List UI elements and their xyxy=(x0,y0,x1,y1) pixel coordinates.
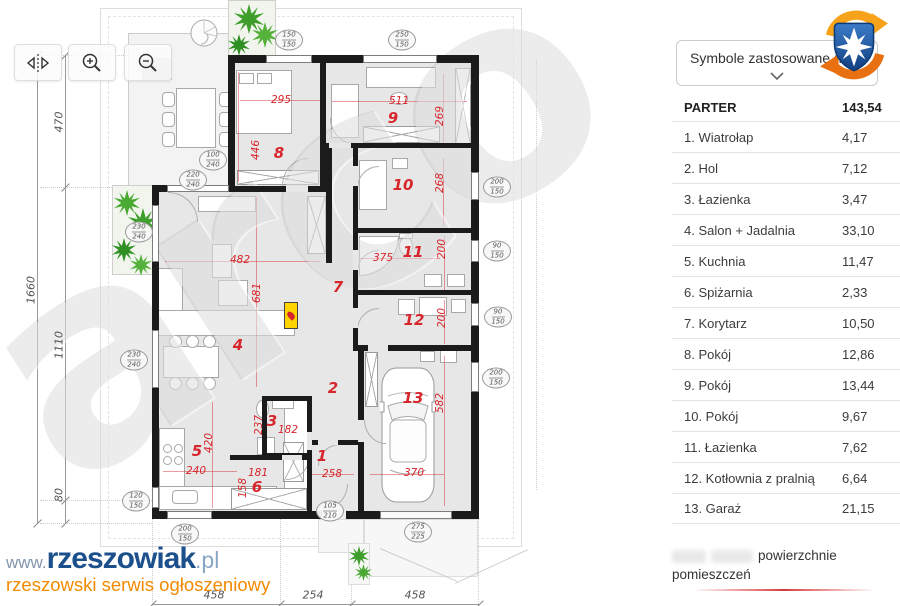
chair xyxy=(162,92,175,107)
desk-chair xyxy=(390,92,408,105)
window xyxy=(471,172,479,200)
table-row: 10. Pokój9,67 xyxy=(672,400,900,431)
chevron-down-icon xyxy=(770,72,784,80)
site-logo[interactable]: www.rzeszowiak.pl rzeszowski serwis ogło… xyxy=(6,542,270,596)
logo-suffix: .pl xyxy=(195,547,219,573)
coffee-table xyxy=(218,280,248,306)
toilet-tank xyxy=(399,233,413,239)
terrace-table xyxy=(176,88,216,148)
wardrobe xyxy=(363,126,440,143)
chair xyxy=(186,335,199,348)
chair xyxy=(203,335,216,348)
storey-title: PARTER xyxy=(684,100,842,115)
cabinet-row xyxy=(231,488,307,510)
chair xyxy=(169,377,182,390)
site-dimension-label: 470 xyxy=(53,112,66,133)
terrace-door xyxy=(167,185,229,192)
storey-total-area: 143,54 xyxy=(842,100,888,115)
fireplace-icon xyxy=(284,302,298,329)
area-table-header: PARTER 143,54 xyxy=(672,93,900,121)
window xyxy=(152,205,159,262)
window xyxy=(471,303,479,326)
table-row: 12. Kotłownia z pralnią6,64 xyxy=(672,462,900,493)
flip-horizontal-button[interactable] xyxy=(14,44,62,81)
dimension-line xyxy=(152,604,479,605)
table-footnote: powierzchnie pomieszczeń xyxy=(672,546,884,584)
car xyxy=(380,366,436,504)
chair xyxy=(169,335,182,348)
dining-table xyxy=(163,346,219,378)
table-row: 9. Pokój13,44 xyxy=(672,369,900,400)
stove-burner xyxy=(163,456,172,465)
logo-name: rzeszowiak xyxy=(47,542,195,575)
redacted-text xyxy=(672,550,706,563)
table-row: 4. Salon + Jadalnia33,10 xyxy=(672,214,900,245)
site-dimension-label: 1110 xyxy=(53,331,66,359)
tree-icon xyxy=(349,546,369,566)
spiral-stair-icon xyxy=(189,18,219,48)
kitchen-sink xyxy=(172,490,198,504)
sink xyxy=(447,274,465,287)
window xyxy=(152,487,159,508)
desk xyxy=(366,67,436,88)
zoom-out-button[interactable] xyxy=(124,44,172,81)
site-dimension-label: 1660 xyxy=(25,276,38,304)
chair xyxy=(162,112,175,127)
flip-horizontal-icon xyxy=(25,52,51,74)
zoom-in-icon xyxy=(80,51,104,75)
red-divider xyxy=(693,589,875,591)
boiler xyxy=(419,297,447,316)
tree-icon xyxy=(228,34,250,56)
utility-sink xyxy=(451,299,466,313)
dimension-line xyxy=(65,55,66,523)
tree-icon xyxy=(252,22,278,48)
garage-equipment xyxy=(420,351,435,362)
dimension-line xyxy=(37,55,38,523)
window xyxy=(471,362,479,392)
table-row: 5. Kuchnia11,47 xyxy=(672,245,900,276)
stove-burner xyxy=(174,456,183,465)
window xyxy=(363,55,437,63)
sofa xyxy=(157,310,295,336)
chair xyxy=(203,377,216,390)
zoom-out-icon xyxy=(136,51,160,75)
plot-guide-line xyxy=(536,60,537,490)
window xyxy=(471,240,479,262)
table-row: 8. Pokój12,86 xyxy=(672,338,900,369)
tree-icon xyxy=(355,564,372,581)
nightstand xyxy=(392,158,408,169)
chair xyxy=(186,377,199,390)
logo-tagline: rzeszowski serwis ogłoszeniowy xyxy=(6,574,270,596)
pillow xyxy=(257,73,272,84)
toilet xyxy=(399,237,413,255)
table-row: 1. Wiatrołap4,17 xyxy=(672,121,900,152)
washing-machine xyxy=(398,299,415,315)
chair xyxy=(162,132,175,147)
site-dimension-label: 254 xyxy=(303,589,324,602)
shield-cross-logo-icon xyxy=(818,8,890,86)
stove-burner xyxy=(174,444,183,453)
logo-prefix: www. xyxy=(6,553,47,572)
tree-icon xyxy=(130,254,152,276)
window xyxy=(266,55,312,63)
window xyxy=(152,330,159,388)
wardrobe xyxy=(307,196,326,254)
table-row: 3. Łazienka3,47 xyxy=(672,183,900,214)
site-dimension-label: 458 xyxy=(405,589,426,602)
table-row: 7. Korytarz10,50 xyxy=(672,307,900,338)
tv-cabinet xyxy=(198,196,256,212)
table-row: 6. Spiżarnia2,33 xyxy=(672,276,900,307)
listing-plan-viewer: arco 1234 xyxy=(0,0,900,606)
wardrobe xyxy=(455,68,471,144)
stove-burner xyxy=(163,444,172,453)
window xyxy=(167,511,212,519)
sink xyxy=(424,274,442,287)
pillow xyxy=(239,73,254,84)
wardrobe xyxy=(365,352,378,407)
zoom-in-button[interactable] xyxy=(68,44,116,81)
redacted-text xyxy=(711,550,753,563)
garage-door xyxy=(380,511,452,519)
table-row: 11. Łazienka7,62 xyxy=(672,431,900,462)
garage-equipment xyxy=(440,350,457,363)
table-row: 13. Garaż21,15 xyxy=(672,493,900,524)
table-row: 2. Hol7,12 xyxy=(672,152,900,183)
area-rows: 1. Wiatrołap4,172. Hol7,123. Łazienka3,4… xyxy=(672,121,900,524)
